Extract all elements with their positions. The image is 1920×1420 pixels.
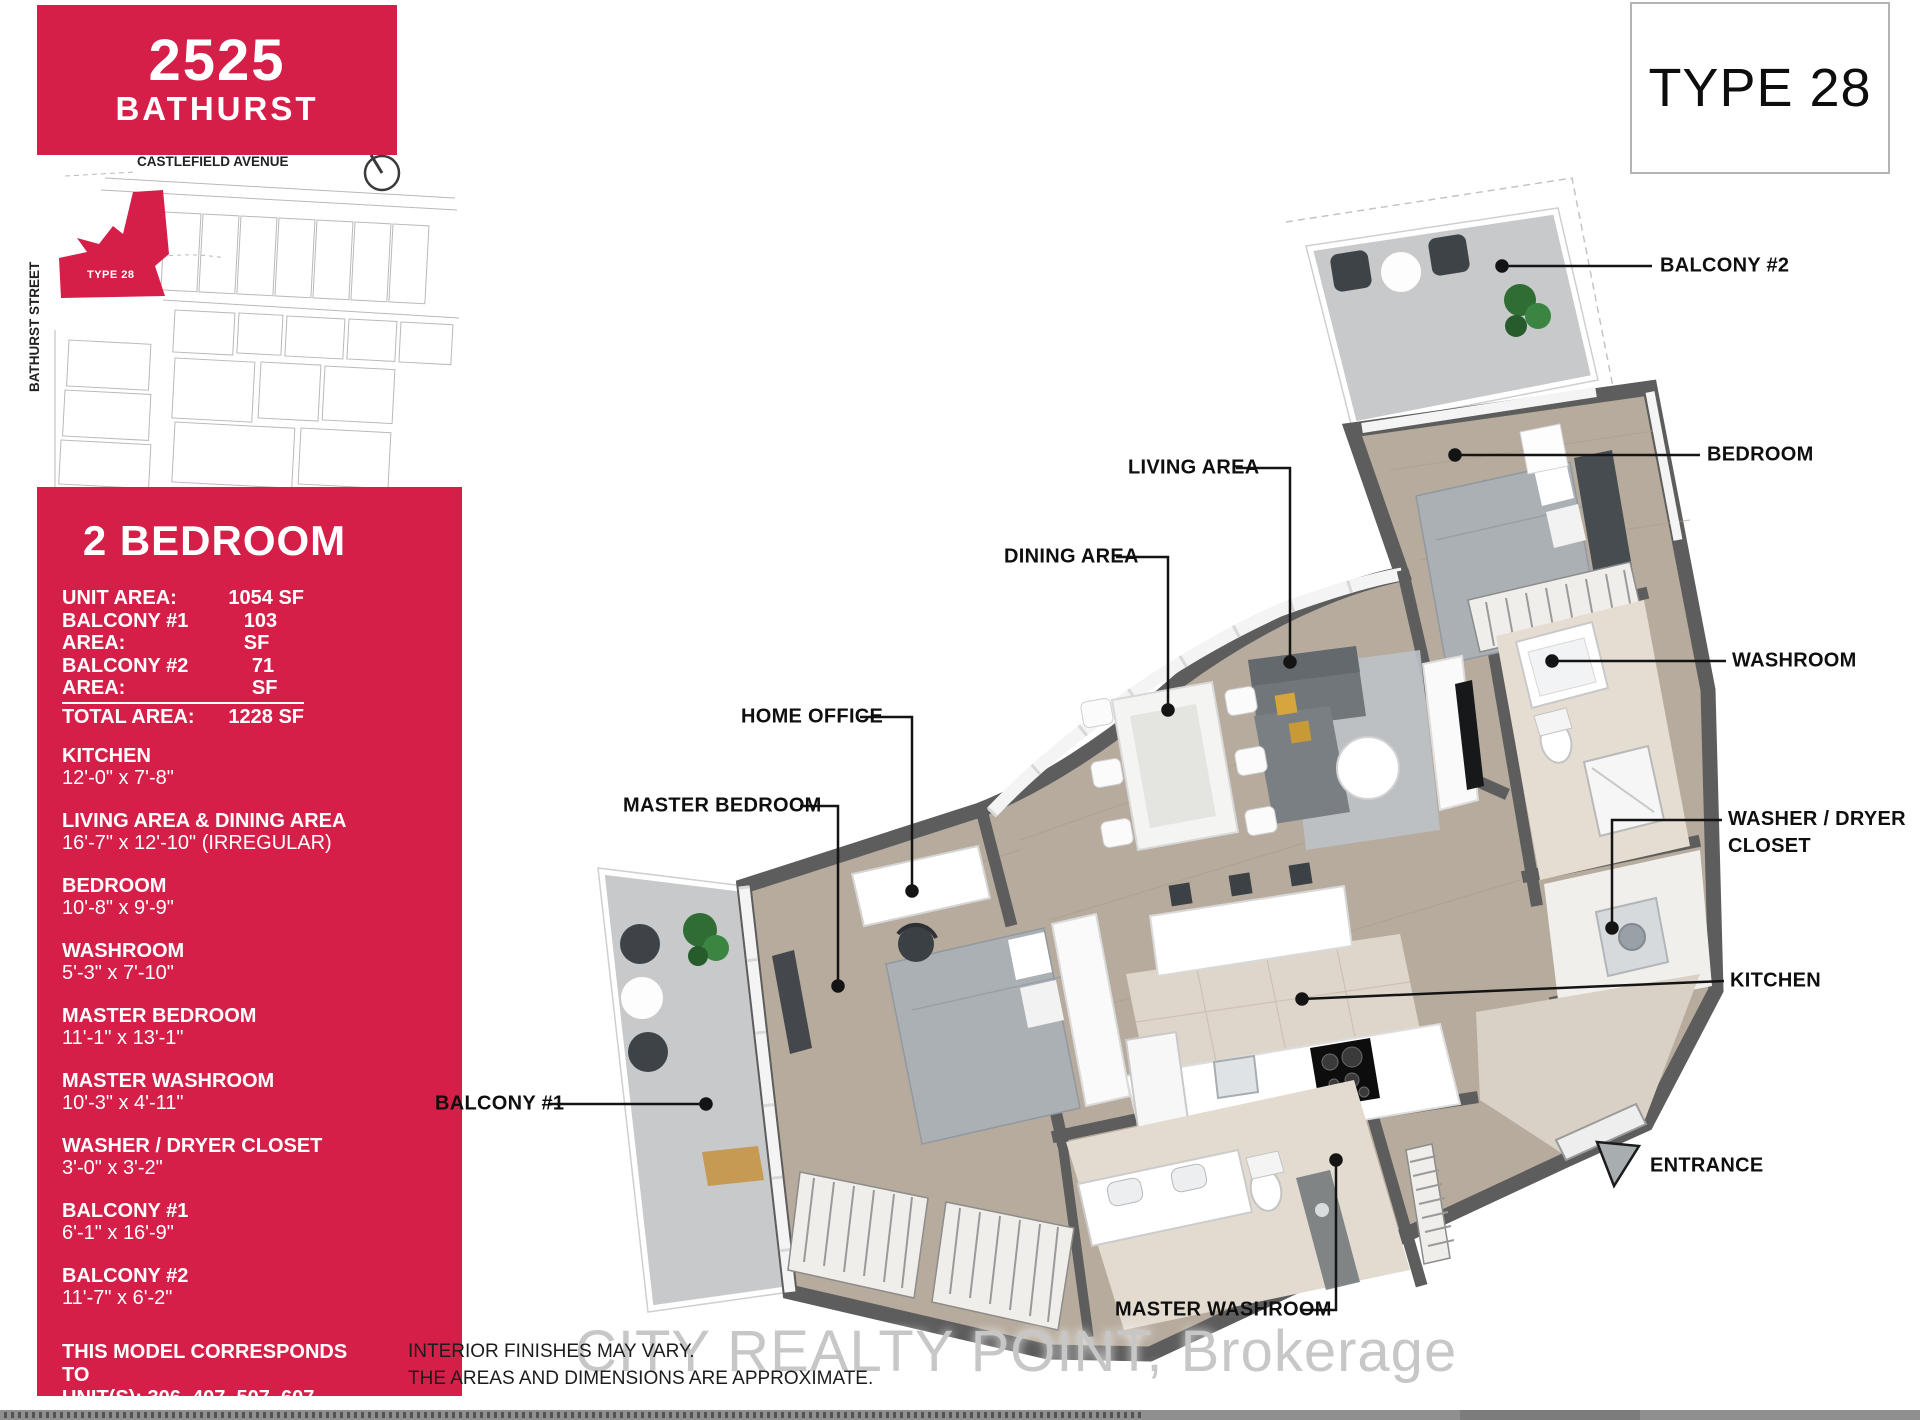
label-living-area: LIVING AREA	[1128, 455, 1259, 482]
disclaimer-line1: INTERIOR FINISHES MAY VARY.	[408, 1338, 873, 1365]
label-bedroom: BEDROOM	[1707, 442, 1814, 469]
label-kitchen: KITCHEN	[1730, 968, 1821, 995]
nightstand	[1520, 424, 1568, 474]
bed-pillow	[1020, 980, 1064, 1028]
kitchen-sink	[1214, 1056, 1258, 1098]
cropped-fine-print-strip	[0, 1410, 1920, 1420]
accent-pillow	[1275, 693, 1298, 716]
flyer-page: 2525 BATHURST CASTLEFIELD AVENUE BATHURS…	[0, 0, 1920, 1420]
label-home-office: HOME OFFICE	[741, 704, 883, 731]
dining-chair	[1080, 698, 1114, 729]
disclaimer-text: INTERIOR FINISHES MAY VARY. THE AREAS AN…	[408, 1338, 873, 1392]
disclaimer-line2: THE AREAS AND DIMENSIONS ARE APPROXIMATE…	[408, 1365, 873, 1392]
label-washroom: WASHROOM	[1732, 648, 1857, 675]
washer-door	[1619, 924, 1645, 950]
wood-ledge	[702, 1146, 764, 1186]
entrance-arrow-icon	[1597, 1142, 1639, 1186]
bar-stool	[1229, 872, 1253, 896]
dining-chair	[1100, 818, 1134, 849]
dining-chair	[1224, 686, 1258, 717]
office-chair	[898, 926, 934, 962]
label-balcony1: BALCONY #1	[435, 1091, 564, 1118]
floor-plan-render	[0, 0, 1920, 1420]
label-master-bedroom: MASTER BEDROOM	[623, 793, 822, 820]
label-balcony2: BALCONY #2	[1660, 253, 1789, 280]
label-washer-dryer-closet: WASHER / DRYER CLOSET	[1728, 806, 1920, 860]
dining-chair	[1244, 806, 1278, 837]
patio-table	[620, 976, 664, 1020]
accent-pillow	[1289, 721, 1312, 744]
label-entrance: ENTRANCE	[1650, 1153, 1764, 1180]
shower-control	[1315, 1203, 1329, 1217]
patio-chair	[628, 1032, 668, 1072]
patio-chair	[1427, 233, 1470, 276]
label-dining-area: DINING AREA	[1004, 544, 1139, 571]
bar-stool	[1289, 862, 1313, 886]
patio-chair	[1329, 249, 1372, 292]
strip-dark-segment	[1460, 1410, 1640, 1420]
patio-chair	[620, 924, 660, 964]
coffee-table	[1337, 737, 1399, 799]
patio-table	[1380, 251, 1422, 293]
dining-set	[1080, 682, 1278, 850]
bar-stool	[1169, 882, 1193, 906]
fridge	[1126, 1032, 1188, 1128]
dining-chair	[1090, 758, 1124, 789]
bed-pillow	[1008, 932, 1052, 980]
illegible-fine-print	[4, 1412, 1144, 1418]
dining-chair	[1234, 746, 1268, 777]
